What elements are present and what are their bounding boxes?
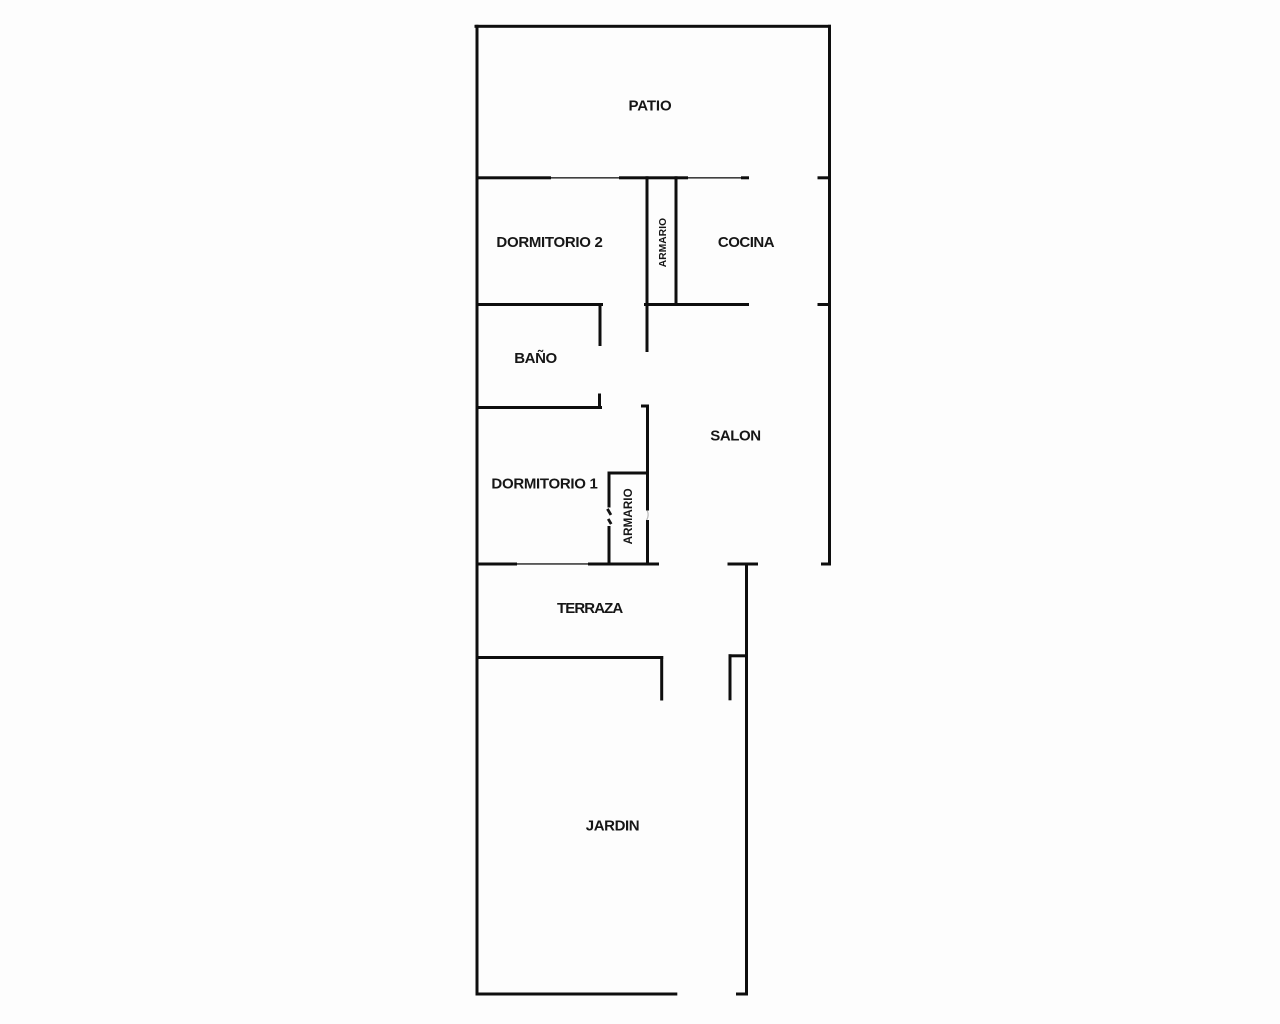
svg-text:JARDIN: JARDIN bbox=[586, 817, 639, 834]
svg-text:PATIO: PATIO bbox=[628, 98, 672, 115]
svg-text:TERRAZA: TERRAZA bbox=[557, 600, 623, 617]
svg-text:SALON: SALON bbox=[710, 427, 761, 444]
svg-text:ARMARIO: ARMARIO bbox=[622, 488, 635, 544]
svg-text:DORMITORIO 2: DORMITORIO 2 bbox=[496, 234, 602, 251]
svg-text:DORMITORIO 1: DORMITORIO 1 bbox=[491, 475, 597, 492]
svg-text:COCINA: COCINA bbox=[718, 234, 775, 251]
svg-text:ARMARIO: ARMARIO bbox=[658, 218, 669, 267]
svg-text:BAÑO: BAÑO bbox=[514, 349, 557, 367]
